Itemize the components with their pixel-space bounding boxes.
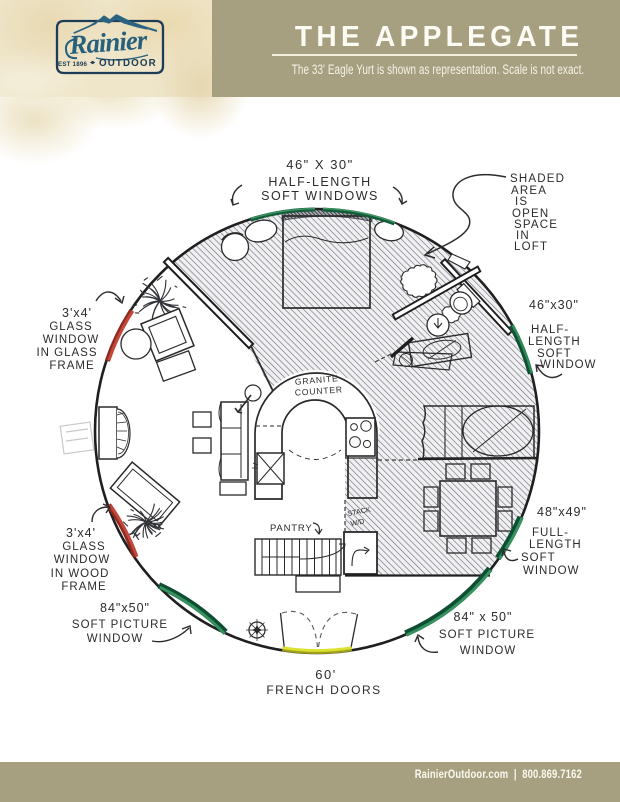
svg-text:FRENCH DOORS: FRENCH DOORS: [266, 683, 381, 697]
svg-text:IS: IS: [515, 196, 528, 208]
svg-text:46"x30": 46"x30": [529, 298, 579, 312]
svg-text:84" x 50": 84" x 50": [454, 610, 513, 624]
svg-text:60': 60': [315, 667, 336, 682]
svg-text:FRAME: FRAME: [49, 360, 94, 372]
svg-text:SOFT PICTURE: SOFT PICTURE: [439, 629, 535, 641]
svg-text:HALF-: HALF-: [531, 324, 569, 336]
svg-text:GLASS: GLASS: [49, 321, 92, 333]
svg-text:WINDOW: WINDOW: [87, 633, 143, 645]
svg-text:SOFT WINDOWS: SOFT WINDOWS: [261, 189, 379, 203]
svg-text:FULL-: FULL-: [532, 527, 569, 539]
svg-text:3'x4': 3'x4': [62, 306, 92, 320]
svg-text:WINDOW: WINDOW: [540, 359, 596, 371]
svg-text:WINDOW: WINDOW: [523, 565, 579, 577]
svg-text:SHADED: SHADED: [510, 173, 565, 185]
svg-text:IN GLASS: IN GLASS: [36, 347, 97, 359]
svg-text:LOFT: LOFT: [514, 241, 548, 253]
svg-text:PANTRY: PANTRY: [270, 523, 312, 534]
svg-text:HALF-LENGTH: HALF-LENGTH: [268, 175, 371, 189]
svg-text:SOFT PICTURE: SOFT PICTURE: [72, 619, 168, 631]
svg-text:IN WOOD: IN WOOD: [51, 568, 110, 580]
svg-text:48"x49": 48"x49": [537, 505, 587, 519]
svg-text:WINDOW: WINDOW: [54, 554, 110, 566]
svg-text:84"x50": 84"x50": [100, 601, 150, 615]
svg-text:LENGTH: LENGTH: [529, 539, 582, 551]
svg-text:WINDOW: WINDOW: [460, 645, 516, 657]
svg-text:3'x4': 3'x4': [66, 526, 96, 540]
svg-text:SOFT: SOFT: [521, 552, 556, 564]
svg-text:46" X 30": 46" X 30": [286, 157, 354, 172]
svg-text:FRAME: FRAME: [61, 581, 106, 593]
svg-text:LENGTH: LENGTH: [528, 336, 581, 348]
svg-text:WINDOW: WINDOW: [43, 334, 99, 346]
svg-text:GLASS: GLASS: [62, 541, 105, 553]
